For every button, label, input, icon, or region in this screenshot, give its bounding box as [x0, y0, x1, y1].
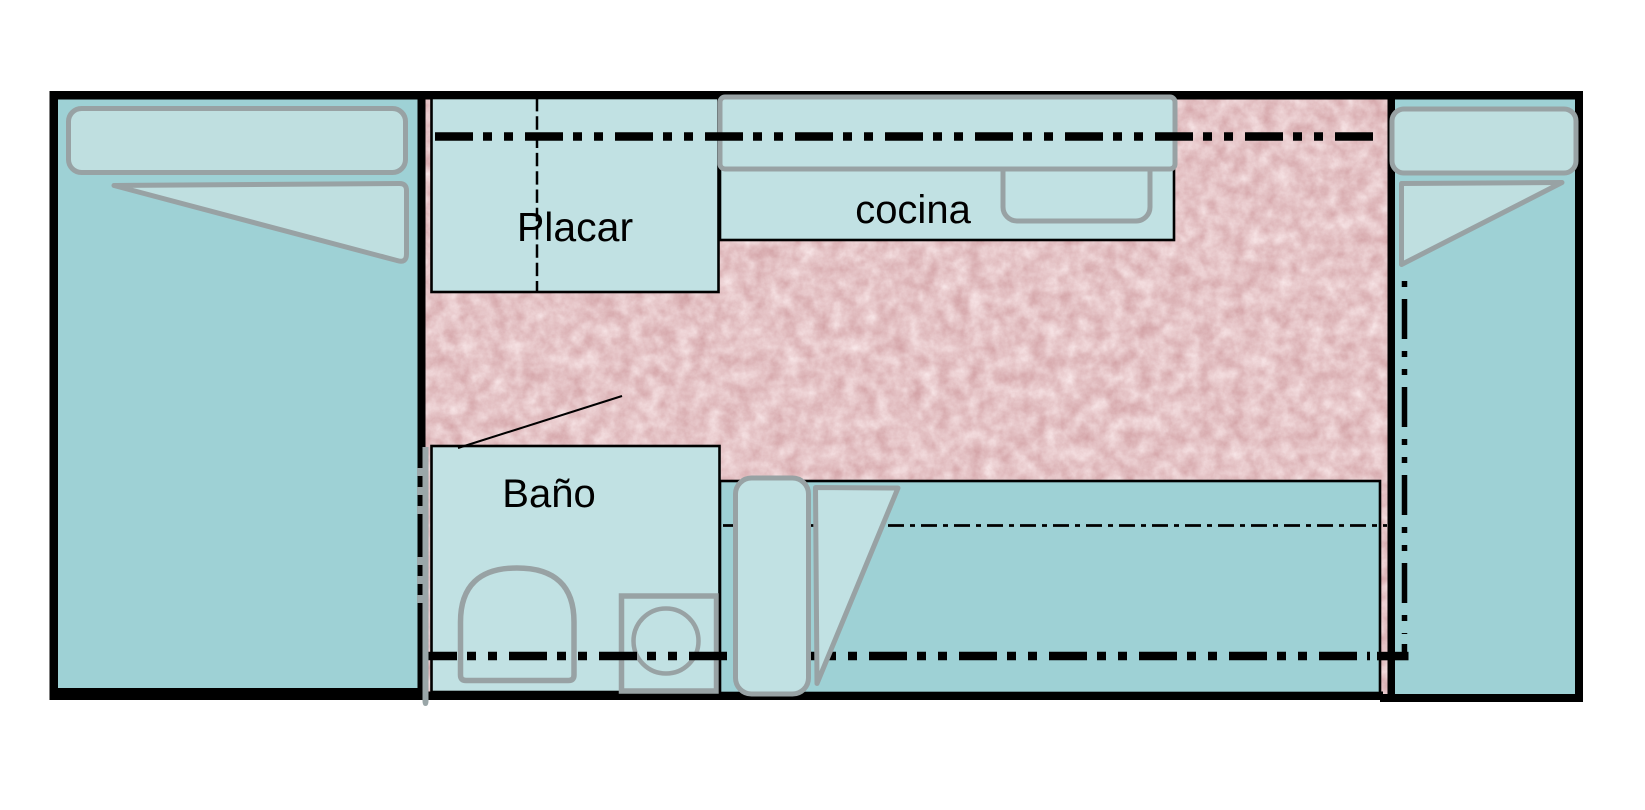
svg-text:Placar: Placar — [517, 204, 633, 250]
svg-text:cocina: cocina — [855, 188, 971, 232]
svg-text:Baño: Baño — [502, 472, 595, 516]
